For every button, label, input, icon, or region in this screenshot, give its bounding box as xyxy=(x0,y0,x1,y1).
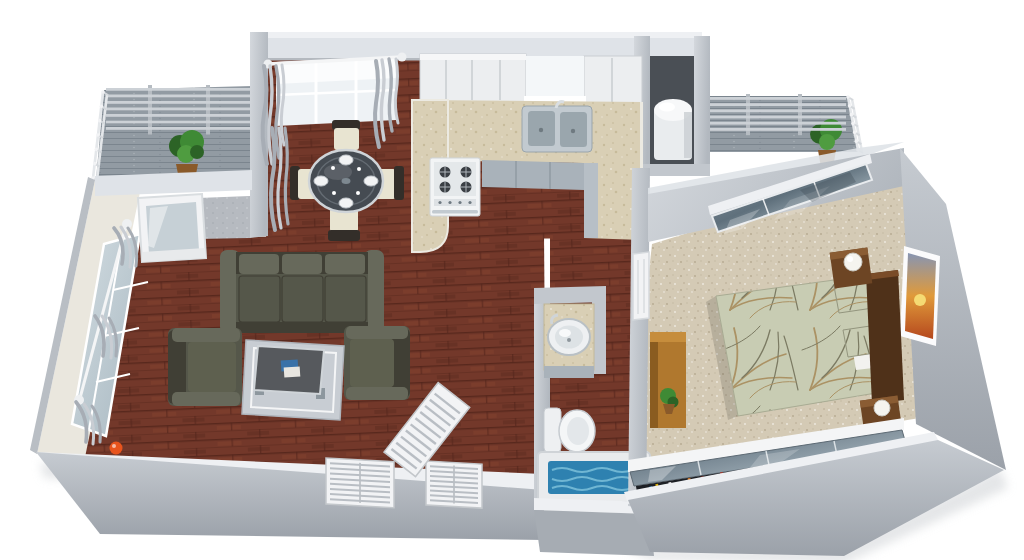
pergola-slat xyxy=(106,101,250,104)
balcony-railing xyxy=(91,90,108,181)
railing-post xyxy=(103,92,108,95)
book-spine xyxy=(811,461,815,470)
west-window-mullions xyxy=(89,239,148,430)
railing-post-cap xyxy=(91,176,95,180)
railing-rail xyxy=(93,92,103,178)
book-spine xyxy=(643,489,647,496)
book-spine xyxy=(752,468,756,479)
pergola-slat xyxy=(106,88,250,91)
louver-slat xyxy=(330,484,390,487)
glass-reflection xyxy=(774,186,830,220)
stove-control-panel xyxy=(434,199,476,206)
book-spine xyxy=(778,465,782,474)
range-stove xyxy=(430,158,480,216)
water-ripples xyxy=(552,468,632,490)
granite-counter-left-arm xyxy=(412,100,448,252)
book-spine xyxy=(817,456,821,467)
railing-post-cap xyxy=(855,139,859,143)
railing-post xyxy=(98,135,103,138)
book-spine xyxy=(720,472,724,483)
dining-window xyxy=(264,53,407,127)
louver-slat xyxy=(396,443,421,463)
place-settings xyxy=(314,155,378,208)
entry-wall-lip xyxy=(95,170,252,196)
book-spine xyxy=(772,469,776,476)
book-spine xyxy=(869,453,873,460)
louver-slat xyxy=(330,494,390,497)
louver-slat xyxy=(430,495,478,498)
book-spine xyxy=(875,449,879,458)
nightstand-top xyxy=(830,248,873,289)
louver-slat xyxy=(330,468,390,471)
railing-post xyxy=(855,132,860,135)
granite-counter-top xyxy=(412,100,642,164)
book-spine xyxy=(714,476,718,485)
bed-sheet xyxy=(852,342,890,370)
railing-rail xyxy=(97,94,107,180)
balcony-railing xyxy=(846,95,863,153)
hallway-bathroom-floor xyxy=(550,234,636,502)
pergola-slat xyxy=(106,121,250,124)
bathroom-door xyxy=(633,252,649,320)
book-spine xyxy=(881,446,885,457)
pergola-slat xyxy=(710,122,846,125)
decor-books xyxy=(281,359,301,377)
bedroom-north-wall xyxy=(648,148,904,242)
dining-kitchen-floor xyxy=(266,50,634,240)
pergola-slat xyxy=(106,95,250,98)
hallway xyxy=(628,168,650,508)
granite-counter-right-arm xyxy=(584,150,642,240)
nightstand-bottom xyxy=(860,396,902,435)
bed-sheet xyxy=(842,278,880,306)
railing-post-cap xyxy=(850,113,854,117)
rod-finial xyxy=(74,395,84,405)
book-spine xyxy=(681,480,685,489)
rod-finial xyxy=(398,53,407,62)
bath-south-lip xyxy=(534,498,650,514)
sink-faucet xyxy=(556,102,564,108)
kitchen xyxy=(412,54,643,252)
book-spine xyxy=(740,473,744,480)
book-spine xyxy=(727,475,731,483)
dining-table xyxy=(309,150,383,212)
book-spine xyxy=(798,460,802,470)
railing-post-cap xyxy=(98,119,102,123)
closet-door-dividers xyxy=(698,441,837,475)
louver-door-open xyxy=(384,383,470,477)
railing-post-cap xyxy=(851,122,855,126)
book-spine xyxy=(649,486,653,495)
floor-plan-figure xyxy=(0,0,1024,560)
railing-post-cap xyxy=(856,148,860,152)
vanity-sink xyxy=(544,304,594,378)
south-wall xyxy=(36,383,544,540)
southeast-wall xyxy=(624,432,1004,556)
backsplash-edge xyxy=(640,102,643,240)
railing-post-cap xyxy=(846,95,850,99)
potted-plant xyxy=(169,130,204,184)
west-wall-inner-face xyxy=(37,180,140,462)
area-rug xyxy=(242,340,344,420)
book-spine xyxy=(655,484,659,495)
west-wall-outer-edge xyxy=(30,177,95,454)
wall-edge xyxy=(250,58,702,61)
book-spine xyxy=(733,472,737,482)
louver-slat xyxy=(406,431,431,451)
louver-closet-door xyxy=(326,458,394,508)
kitchen-window-sill xyxy=(524,96,586,102)
dining-chair-west xyxy=(290,166,320,200)
console-desk xyxy=(650,332,686,428)
louver-slat xyxy=(430,500,478,503)
bedroom-north-ledge xyxy=(648,142,904,236)
living-room-floor xyxy=(82,234,546,482)
mirror-reflection xyxy=(748,449,800,470)
west-window-glazing xyxy=(72,234,140,436)
se-wall-face xyxy=(628,440,1004,556)
pergola-beam xyxy=(746,94,750,135)
book-spine xyxy=(675,485,679,492)
closet-bottom-wall xyxy=(634,164,710,176)
water-heater xyxy=(654,99,692,160)
book-spine xyxy=(805,463,809,470)
closet-top-rail xyxy=(628,418,904,472)
curtain-rod xyxy=(80,226,126,398)
closet-shelf xyxy=(636,444,906,500)
floor-plan-render xyxy=(0,0,1024,560)
rod-finial xyxy=(122,219,132,229)
sliding-door-rail xyxy=(708,154,872,215)
book-spine xyxy=(695,480,699,488)
plant-pot xyxy=(818,150,836,168)
louver-slat xyxy=(430,491,478,494)
entry-door xyxy=(138,194,206,262)
louver-slat xyxy=(425,406,450,426)
book-spine xyxy=(849,452,853,463)
louver-slat xyxy=(430,486,478,489)
railing-post xyxy=(850,106,855,109)
balcony-right xyxy=(702,94,863,168)
building-shadow xyxy=(40,462,1008,560)
pillow xyxy=(843,325,882,357)
pergola-slat xyxy=(710,103,846,106)
se-wall-lip xyxy=(624,432,940,504)
railing-post xyxy=(858,150,863,153)
louver-slat xyxy=(430,400,455,420)
louver-slat xyxy=(330,499,390,502)
kitchen-window xyxy=(526,56,584,100)
railing-post xyxy=(93,178,98,181)
louver-slat xyxy=(430,471,478,474)
sink-drain xyxy=(539,128,543,132)
table-lamp xyxy=(844,253,862,271)
art-sun xyxy=(914,294,926,306)
louver-slat xyxy=(435,394,460,414)
railing-rail xyxy=(852,99,862,152)
sofa-front-rail xyxy=(236,322,368,333)
headboard-edge xyxy=(866,270,899,280)
book-spine xyxy=(862,451,866,461)
dining-chair-north xyxy=(332,120,360,150)
pergola-beam xyxy=(206,85,210,135)
louver-slat xyxy=(330,489,390,492)
south-wall-lip xyxy=(36,452,544,490)
closet-left-wall xyxy=(634,36,650,172)
railing-post-cap xyxy=(96,133,100,137)
balcony-left xyxy=(91,85,252,184)
railing-post-cap xyxy=(853,131,857,135)
double-sink xyxy=(522,102,592,152)
window-glazing xyxy=(276,57,396,126)
book-spine xyxy=(688,478,692,489)
louver-slat xyxy=(415,418,440,438)
railing-post xyxy=(848,97,853,100)
wall-art xyxy=(900,246,940,346)
wall-face xyxy=(250,38,702,60)
pergola-beam xyxy=(148,85,152,135)
railing-post-cap xyxy=(100,105,104,109)
bath-south-face xyxy=(534,510,654,556)
table-lamp xyxy=(874,400,890,416)
desk-plant xyxy=(660,388,679,414)
railing-post xyxy=(851,115,856,118)
dining-set xyxy=(290,120,404,241)
book-spine xyxy=(895,445,899,455)
louver-slat xyxy=(430,476,478,479)
potted-plant xyxy=(810,119,842,168)
bathroom-left-wall xyxy=(534,288,550,500)
louver-slat xyxy=(401,437,426,457)
louver-slat xyxy=(420,412,445,432)
book-spine xyxy=(824,459,828,467)
closet-mirror-doors xyxy=(630,430,906,486)
louver-slat xyxy=(430,466,478,469)
living-room xyxy=(110,250,411,455)
entry xyxy=(95,170,252,262)
book-spine xyxy=(830,456,834,466)
west-curtain-bunches xyxy=(76,227,137,444)
louver-slat xyxy=(411,424,436,444)
louver-slat xyxy=(330,479,390,482)
railing-post-cap xyxy=(848,104,852,108)
north-wall xyxy=(250,32,702,238)
louver-slat xyxy=(330,474,390,477)
balcony-right-floor xyxy=(702,96,858,152)
door-glass-reflection xyxy=(148,206,168,248)
book-spine xyxy=(701,476,705,486)
door-kick-panel xyxy=(142,248,206,262)
pergola-slat xyxy=(710,116,846,119)
bedroom-carpet xyxy=(628,168,920,464)
book-spine xyxy=(708,479,712,486)
pergola-slat xyxy=(106,108,250,111)
railing-post xyxy=(101,106,106,109)
toilet xyxy=(544,408,595,452)
west-wall xyxy=(30,177,148,462)
armchair-right xyxy=(344,326,410,400)
book-spine xyxy=(888,449,892,457)
dining-west-wall xyxy=(250,32,268,238)
book-spine xyxy=(759,469,763,477)
dining-chair-east xyxy=(374,166,404,200)
railing-post xyxy=(100,121,105,124)
louver-closet-door xyxy=(426,461,482,508)
glass-reflection xyxy=(724,209,760,234)
book-spine xyxy=(662,485,666,493)
railing-post-cap xyxy=(95,148,99,152)
curtain-rod xyxy=(268,57,402,64)
closet xyxy=(628,418,906,500)
bedroom xyxy=(628,142,1006,500)
railing-post xyxy=(95,164,100,167)
dining-chair-south xyxy=(328,208,360,241)
decor-ball-highlight xyxy=(112,444,116,448)
louver-slat xyxy=(330,463,390,466)
closet-books xyxy=(643,445,899,496)
railing-post xyxy=(853,124,858,127)
pergola-right xyxy=(710,94,846,135)
utility-closet xyxy=(634,36,710,176)
louver-slat xyxy=(391,449,416,469)
pergola-slat xyxy=(106,114,250,117)
pergola-beam xyxy=(798,94,802,135)
wall-top-lip xyxy=(250,32,702,42)
book-spine xyxy=(668,482,672,492)
armchair-left xyxy=(168,328,242,406)
south-wall-face xyxy=(36,452,544,540)
pergola-slat xyxy=(106,127,250,130)
sink-drain xyxy=(571,129,575,133)
coffee-table xyxy=(254,346,325,399)
roman-shade xyxy=(276,57,396,84)
railing-post-cap xyxy=(101,90,105,94)
mirror-reflection xyxy=(648,466,676,482)
louver-slat xyxy=(430,481,478,484)
book-spine xyxy=(791,465,795,473)
pillow xyxy=(834,281,873,313)
pergola-slat xyxy=(710,97,846,100)
book-spine xyxy=(746,470,750,479)
pergola-slat xyxy=(710,128,846,131)
vanity-niche-wall xyxy=(534,286,606,304)
railing-post xyxy=(96,149,101,152)
sliding-glass-door xyxy=(712,164,872,234)
railing-post xyxy=(856,141,861,144)
entry-tile-floor xyxy=(142,196,250,240)
sofa xyxy=(220,250,384,334)
dining-curtains xyxy=(263,59,398,230)
book-spine xyxy=(785,462,789,473)
oven-handle xyxy=(432,210,478,214)
pergola-slat xyxy=(710,109,846,112)
rod-finial xyxy=(264,60,273,69)
closet-right-wall xyxy=(694,36,710,172)
book-spine xyxy=(856,453,860,461)
lower-cabinets xyxy=(482,160,598,238)
closet-interior xyxy=(648,56,696,168)
lamp-highlight xyxy=(847,256,853,262)
glass-reflection-dark xyxy=(800,172,856,202)
railing-rail xyxy=(848,97,858,150)
book-spine xyxy=(843,455,847,464)
book-spine xyxy=(765,466,769,476)
decor-ball xyxy=(110,442,123,455)
book-spine xyxy=(837,457,841,464)
duvet-drape-shadow xyxy=(706,296,738,420)
pergola-left xyxy=(106,85,250,135)
balcony-left-floor xyxy=(96,86,252,180)
hall-wall xyxy=(628,168,650,508)
bed xyxy=(706,270,904,420)
vanity-niche-stub xyxy=(592,302,606,374)
railing-post-cap xyxy=(93,162,97,166)
bathroom xyxy=(534,286,654,556)
bathtub xyxy=(538,452,650,502)
upper-cabinets xyxy=(420,54,642,104)
plant-pot xyxy=(176,164,198,184)
faucet xyxy=(552,315,558,324)
headboard xyxy=(866,270,904,404)
bedroom-right-wall xyxy=(900,148,1006,470)
sink-drain xyxy=(567,338,571,342)
